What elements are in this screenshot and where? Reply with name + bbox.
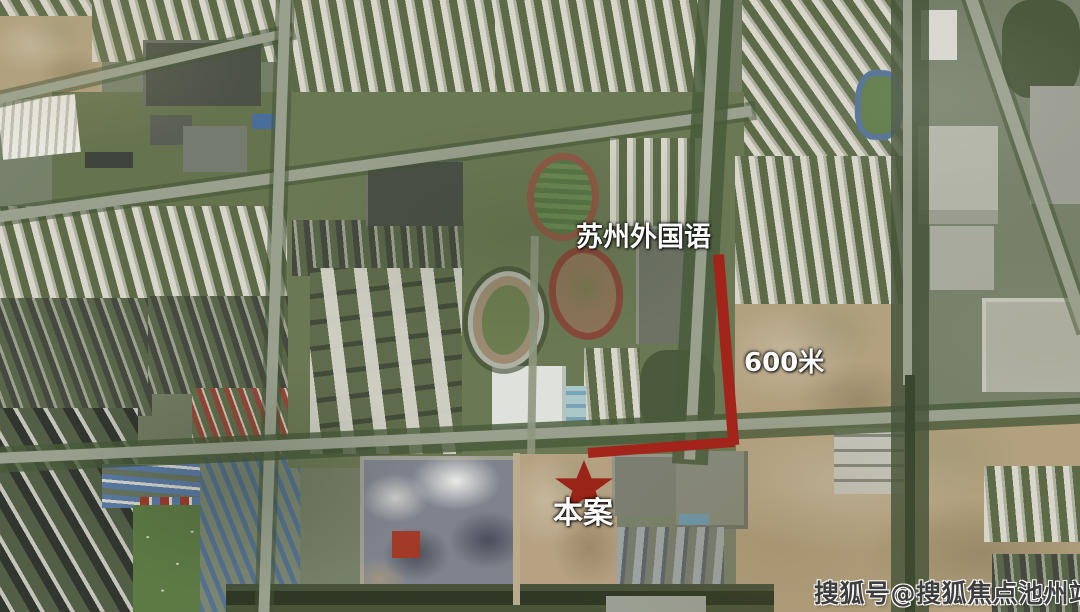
red-roof-building: [392, 531, 420, 558]
apartment-towers: [0, 408, 138, 612]
building: [0, 94, 81, 160]
road: [903, 0, 912, 385]
residential-block: [0, 206, 287, 308]
school-label: 苏州外国语: [576, 224, 711, 252]
distance-label: 600米: [744, 350, 824, 377]
dirt-road: [513, 453, 520, 605]
factory-building: [930, 226, 994, 290]
construction-site: [360, 456, 520, 596]
residential-block: [0, 298, 152, 416]
watermark: 搜狐号@搜狐焦点池州站: [814, 574, 1080, 610]
pool: [679, 514, 709, 525]
residential-block: [984, 466, 1080, 542]
factory-building: [918, 126, 998, 224]
factory-building: [982, 298, 1080, 392]
building: [85, 152, 133, 168]
tree-cluster: [1002, 0, 1080, 98]
warehouse-rows: [617, 527, 724, 584]
site-label: 本案: [553, 498, 613, 530]
grass-field: [133, 505, 207, 612]
building: [366, 160, 463, 226]
residential-block: [735, 156, 905, 306]
building: [183, 126, 247, 172]
blue-roof-building: [252, 114, 276, 129]
building: [606, 596, 706, 612]
satellite-map: 苏州外国语 600米 本案 搜狐号@搜狐焦点池州站: [0, 0, 1080, 612]
